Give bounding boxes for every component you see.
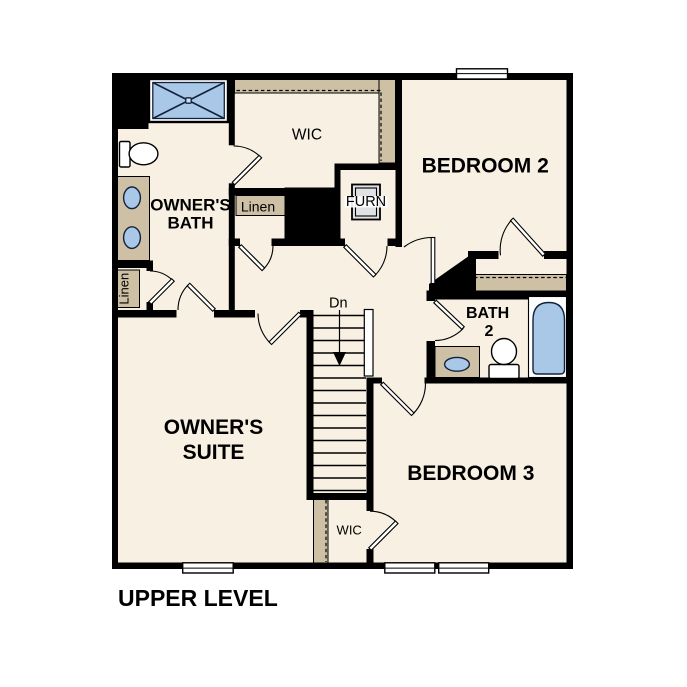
svg-text:BEDROOM 2: BEDROOM 2	[422, 154, 549, 177]
svg-text:Dn: Dn	[329, 296, 348, 312]
svg-text:SUITE: SUITE	[183, 441, 245, 464]
svg-text:BATH: BATH	[466, 305, 509, 322]
svg-text:Linen: Linen	[241, 198, 275, 214]
svg-text:WIC: WIC	[337, 523, 362, 538]
svg-text:Linen: Linen	[117, 273, 132, 305]
svg-text:FURN: FURN	[346, 194, 386, 210]
svg-text:BATH: BATH	[168, 214, 214, 233]
svg-text:OWNER'S: OWNER'S	[164, 416, 264, 439]
svg-text:WIC: WIC	[292, 127, 322, 144]
svg-text:BEDROOM 3: BEDROOM 3	[407, 462, 534, 485]
svg-text:2: 2	[485, 323, 494, 340]
svg-text:UPPER LEVEL: UPPER LEVEL	[118, 585, 278, 611]
svg-text:OWNER'S: OWNER'S	[150, 195, 231, 214]
